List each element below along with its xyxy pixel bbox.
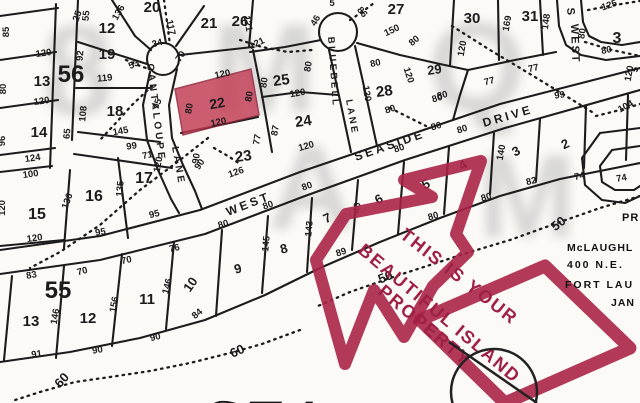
dimension-label: 120 (33, 95, 50, 108)
lot-boundary-line (444, 147, 449, 214)
dimension-label: 80 (369, 57, 382, 70)
lot-number: 16 (85, 188, 103, 205)
dimension-label: 80 (383, 103, 396, 117)
dimension-label: 140 (495, 144, 509, 162)
dimension-label: 120 (0, 200, 8, 216)
lot-number: 24 (294, 112, 314, 131)
contour-elevation-label: 50 (548, 213, 569, 234)
lot-boundary-line (536, 119, 540, 181)
lot-number: 12 (99, 20, 116, 37)
lot-number: 11 (139, 291, 155, 308)
dimension-label: 80 (217, 218, 230, 231)
lot-boundary-line (50, 4, 56, 168)
dimension-label: 120 (297, 139, 315, 154)
dimension-label: 150 (382, 22, 401, 39)
dimension-label: 120 (26, 232, 43, 245)
dimension-label: 99 (554, 89, 566, 101)
lot-number: 8 (278, 240, 289, 256)
dimension-label: 80 (300, 180, 314, 194)
dimension-label: 87 (269, 124, 282, 136)
lot-number: 25 (272, 71, 291, 90)
surveyor-text-line: JAN (611, 297, 635, 309)
surveyor-text-line: PR (622, 212, 639, 224)
lot-number: 18 (107, 103, 124, 120)
dimension-label: 90 (91, 344, 103, 357)
dimension-label: 120 (210, 116, 228, 130)
dimension-label: 99 (126, 140, 138, 152)
shore-title-word: SEA (204, 393, 332, 403)
street-name: WEST (224, 189, 273, 219)
lot-number: 3 (509, 143, 522, 160)
dimension-label: 104 (616, 98, 636, 115)
dimension-label: 80 (407, 33, 422, 48)
dimension-label: 5 (329, 0, 335, 9)
street-name: CANTALOUPE (144, 63, 167, 162)
dimension-label: 80 (302, 60, 315, 72)
lot-number: 22 (208, 94, 226, 112)
lot-number: 27 (388, 1, 405, 18)
dimension-label: 65 (62, 127, 74, 139)
dimension-label: 92 (75, 50, 87, 61)
lot-number: 30 (464, 10, 481, 27)
dimension-label: 96 (0, 136, 8, 147)
dimension-label: 70 (120, 254, 133, 267)
dimension-label: 135 (114, 180, 126, 197)
dimension-label: 77 (527, 62, 540, 75)
dimension-label: 80 (258, 77, 270, 89)
dimension-label: 77 (251, 133, 264, 145)
dimension-label: 80 (430, 120, 443, 133)
lot-number: 12 (80, 310, 97, 327)
dimension-label: 55 (81, 9, 93, 21)
lot-number: 31 (522, 8, 539, 25)
dimension-label: 125 (600, 0, 619, 13)
street-name: BLUEBELL (325, 36, 341, 107)
lot-number: 13 (23, 313, 40, 330)
plat-line-work (0, 0, 640, 362)
dimension-label: 146 (49, 308, 63, 326)
lot-boundary-line (490, 133, 494, 194)
shoreline-title-text: THESEA (112, 393, 332, 403)
lot-number: 10 (180, 274, 201, 294)
dimension-label: 70 (76, 265, 89, 278)
dimension-label: 121 (241, 15, 255, 33)
dimension-label: 145 (260, 235, 272, 252)
dimension-label: 90 (190, 152, 203, 164)
street-name: S (564, 7, 577, 17)
dimension-label: 77 (483, 75, 496, 88)
dimension-label: 80 (0, 84, 9, 95)
dimension-label: 146 (160, 277, 175, 295)
lot-boundary-line (498, 0, 499, 60)
dimension-label: 80 (436, 89, 449, 102)
dimension-label: 95 (94, 226, 107, 239)
dimension-label: 76 (168, 242, 181, 255)
lot-boundary-line (180, 47, 253, 55)
street-name: WEST (568, 24, 581, 64)
dimension-label: 80 (183, 102, 196, 114)
surveyor-text-line: FORT LAU (565, 279, 634, 291)
dimension-label: 136 (60, 192, 76, 211)
lot-boundary-line (118, 158, 128, 238)
plat-map-scan: 8MQAM 2021262730313291213141918562522242… (0, 0, 640, 403)
dimension-label: 34 (151, 37, 165, 51)
street-name: SEASIDE (352, 127, 426, 164)
surveyor-text-line: 400 N.E. (567, 259, 624, 271)
lot-number: 9 (232, 260, 243, 276)
dimension-label: 91 (31, 348, 44, 360)
dimension-label: 143 (303, 220, 315, 237)
dimension-label: 100 (22, 168, 39, 181)
lot-number: 56 (58, 61, 85, 88)
lot-number: 3 (613, 30, 622, 47)
dimension-label: 120 (289, 87, 307, 101)
dimension-label: 120 (35, 47, 52, 60)
dimension-label: 71 (141, 149, 154, 162)
lot-number: 2 (559, 136, 572, 153)
dimension-label: 83 (25, 269, 37, 282)
lot-boundary-line (453, 70, 468, 120)
lot-boundary-line (216, 230, 222, 316)
lot-number: 15 (28, 206, 46, 223)
street-name: DRIVE (481, 102, 535, 130)
dimension-label: 95 (148, 208, 162, 221)
lot-number: 19 (99, 46, 116, 63)
lot-number: 28 (375, 82, 394, 101)
dimension-label: 70 (173, 49, 188, 64)
lot-boundary-line (0, 68, 640, 250)
dimension-label: 145 (112, 125, 130, 139)
lot-boundary-line (262, 216, 268, 293)
plat-map-svg: 2021262730313291213141918562522242328171… (0, 0, 640, 403)
surveyor-text-line: McLAUGHL (567, 242, 633, 254)
dimension-label: 80 (243, 90, 256, 102)
lot-number: 29 (426, 61, 442, 78)
lot-number: 13 (34, 73, 51, 90)
lot-number: 17 (135, 170, 153, 187)
lot-number: 23 (234, 147, 253, 166)
dimension-label: 156 (108, 296, 122, 314)
lot-number: 20 (144, 0, 161, 16)
dimension-label: 120 (401, 66, 416, 84)
dimension-label: 53 (127, 58, 141, 72)
dimension-label: 74 (615, 172, 628, 185)
dimension-label: 148 (540, 13, 553, 30)
lot-boundary-line (584, 106, 586, 168)
dimension-label: 85 (1, 26, 12, 37)
dimension-label: 169 (501, 15, 515, 33)
dimension-label: 80 (600, 44, 613, 57)
dimension-label: 80 (455, 123, 468, 137)
dimension-label: 120 (360, 85, 374, 103)
lot-boundary-line (450, 0, 454, 66)
dimension-label: 120 (456, 40, 470, 58)
dimension-label: 84 (190, 306, 206, 322)
lot-number: 21 (201, 15, 218, 32)
dimension-label: 108 (77, 105, 89, 122)
dimension-label: 124 (24, 152, 42, 165)
contour-elevation-label: 60 (227, 341, 246, 361)
dimension-label: 126 (227, 165, 246, 181)
lot-boundary-line (4, 276, 12, 360)
lot-number: 7 (321, 210, 334, 227)
lot-number: 55 (45, 277, 72, 304)
dimension-label: 80 (427, 210, 440, 223)
lot-boundary-line (0, 8, 58, 16)
dimension-label: 119 (97, 72, 113, 84)
dimension-label: 117 (163, 19, 177, 36)
lot-number: 14 (31, 124, 48, 141)
